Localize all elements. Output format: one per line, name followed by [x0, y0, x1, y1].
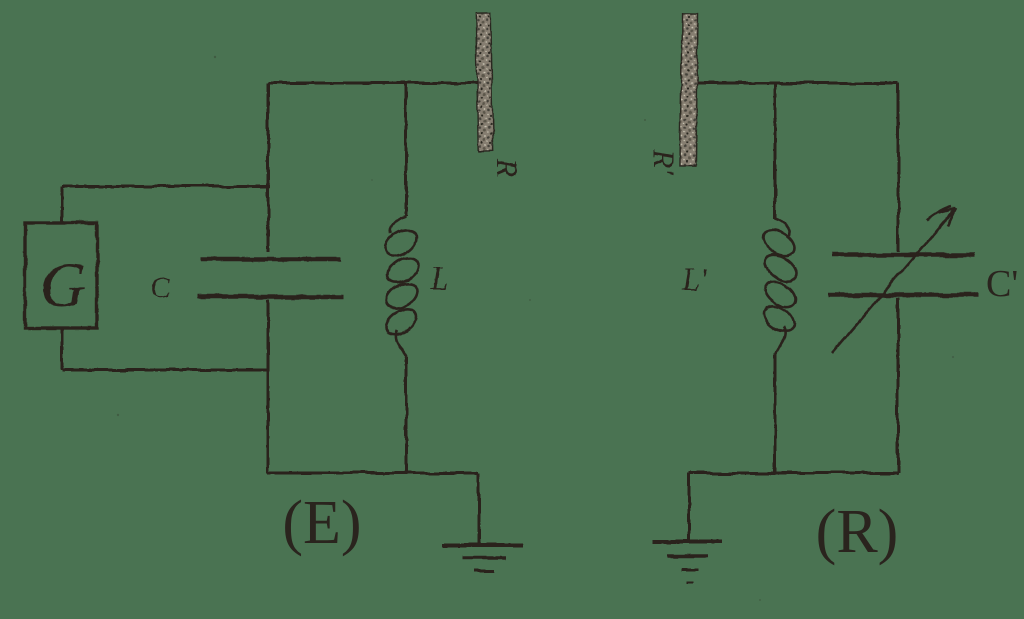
variable-arrow-shaft	[832, 208, 956, 353]
inductor-coil	[381, 216, 423, 357]
receiver-caption: (R)	[816, 498, 899, 566]
variable-capacitor-label: C'	[986, 263, 1018, 305]
coil-turn	[761, 250, 801, 286]
circuit-diagram-canvas: G C L R R' L' C' (E) (R)	[0, 0, 1024, 619]
coil-turn	[381, 225, 421, 261]
antenna-label-left: R	[490, 158, 523, 177]
coil-turn	[759, 301, 799, 337]
emitter-caption: (E)	[282, 489, 361, 557]
antenna-bar-rect	[476, 13, 493, 151]
antenna-bar	[680, 13, 698, 165]
ground-symbol	[443, 545, 523, 571]
generator-label: G	[40, 249, 86, 320]
variable-capacitor	[828, 206, 978, 353]
coil-turn	[382, 278, 422, 314]
antenna-label-right: R'	[647, 149, 680, 175]
antenna-bar-rect	[680, 13, 698, 165]
receiver-circuit	[653, 13, 978, 582]
spark-transmitter-receiver-schematic: G C L R R' L' C' (E) (R)	[0, 0, 1024, 619]
capacitor-label: C	[150, 271, 171, 304]
inductor-label: L	[429, 261, 449, 298]
coil-turn	[383, 252, 423, 288]
inductor-coil	[759, 218, 801, 355]
antenna-bar	[476, 13, 493, 151]
inductor-label-right: L'	[681, 261, 708, 297]
ground-symbol	[653, 542, 722, 582]
coil-turn	[381, 304, 421, 340]
capacitor	[197, 259, 343, 297]
